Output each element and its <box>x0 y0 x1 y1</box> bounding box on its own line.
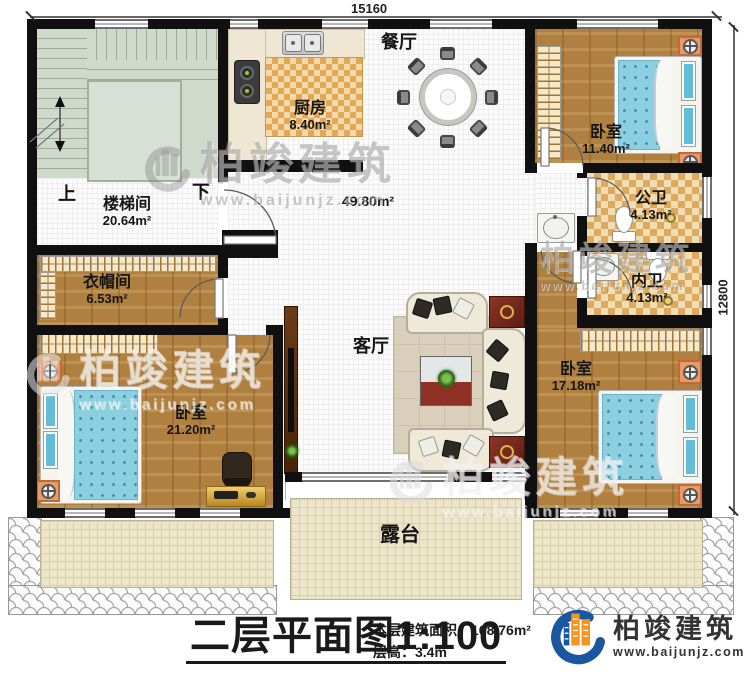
door-arc <box>180 279 219 318</box>
room-label-bedroom2: 卧室 17.18m² <box>552 361 600 394</box>
door-leaf <box>588 178 596 216</box>
room-label-living: 客厅 <box>353 336 389 357</box>
room-area: 20.64m² <box>103 214 151 229</box>
room-name: 客厅 <box>353 336 389 357</box>
room-label-public-bath: 公卫 4.13m² <box>630 190 671 223</box>
room-area: 8.40m² <box>289 118 330 133</box>
door-arc <box>592 178 630 216</box>
door-arc <box>541 251 577 283</box>
room-name: 内卫 <box>626 273 667 291</box>
room-area: 49.80m² <box>342 193 394 209</box>
floor-plan-canvas: 楼梯间 20.64m² 上 下 厨房 8.40m² 餐厅 49.80m² 客厅 … <box>0 0 750 674</box>
room-label-dining: 餐厅 <box>381 32 417 53</box>
room-label-kitchen: 厨房 8.40m² <box>289 100 330 133</box>
dimension-top-value: 15160 <box>351 1 387 16</box>
room-label-private-bath: 内卫 4.13m² <box>626 273 667 306</box>
door-leaf <box>224 236 276 244</box>
room-name: 卧室 <box>167 405 215 423</box>
room-label-bedroom3: 卧室 21.20m² <box>167 405 215 438</box>
door-leaf <box>541 128 549 166</box>
room-label-cloakroom: 衣帽间 6.53m² <box>83 274 131 307</box>
stair-up-label: 上 <box>58 180 76 206</box>
room-area: 21.20m² <box>167 423 215 438</box>
room-name: 厨房 <box>289 100 330 118</box>
door-leaf <box>588 258 596 298</box>
door-arc <box>232 335 270 373</box>
room-name: 楼梯间 <box>103 196 151 214</box>
door-arc <box>545 128 583 166</box>
door-leaf <box>228 335 236 373</box>
dimension-right-value: 12800 <box>716 268 731 328</box>
floor-area-value: 168.76m² <box>471 622 531 638</box>
room-area: 6.53m² <box>83 292 131 307</box>
door-leaf <box>573 251 581 283</box>
dimension-line-top <box>30 16 722 18</box>
floor-height-label: 层高： <box>373 644 415 660</box>
plan-info: 本层建筑面积：168.76m² 层高：3.4m <box>373 620 531 663</box>
room-name: 露台 <box>380 524 420 547</box>
room-area: 17.18m² <box>552 379 600 394</box>
living-area-label: 49.80m² <box>342 193 394 209</box>
room-name: 卧室 <box>552 361 600 379</box>
floor-area-label: 本层建筑面积： <box>373 622 471 638</box>
floor-area-line: 本层建筑面积：168.76m² <box>373 620 531 642</box>
room-name: 卧室 <box>582 124 630 142</box>
room-label-stairwell: 楼梯间 20.64m² <box>103 196 151 229</box>
brand-block: 柏竣建筑 www.baijunjz.com <box>545 606 745 668</box>
floor-height-line: 层高：3.4m <box>373 642 531 664</box>
stair-down-label: 下 <box>192 178 210 204</box>
brand-name: 柏竣建筑 <box>613 615 745 645</box>
room-label-bedroom1: 卧室 11.40m² <box>582 124 630 157</box>
room-name: 餐厅 <box>381 32 417 53</box>
room-area: 4.13m² <box>630 208 671 223</box>
room-name: 衣帽间 <box>83 274 131 292</box>
dimension-line-right <box>733 25 735 515</box>
floor-height-value: 3.4m <box>415 644 447 660</box>
room-area: 4.13m² <box>626 291 667 306</box>
brand-url: www.baijunjz.com <box>613 645 745 659</box>
room-area: 11.40m² <box>582 142 630 157</box>
plan-title-text: 二层平面图 <box>190 614 395 658</box>
brand-logo-icon <box>545 606 605 668</box>
stair-direction-marks <box>30 96 65 152</box>
door-arc <box>224 190 276 242</box>
room-label-terrace: 露台 <box>380 524 420 547</box>
door-leaf <box>215 279 223 318</box>
room-name: 公卫 <box>630 190 671 208</box>
